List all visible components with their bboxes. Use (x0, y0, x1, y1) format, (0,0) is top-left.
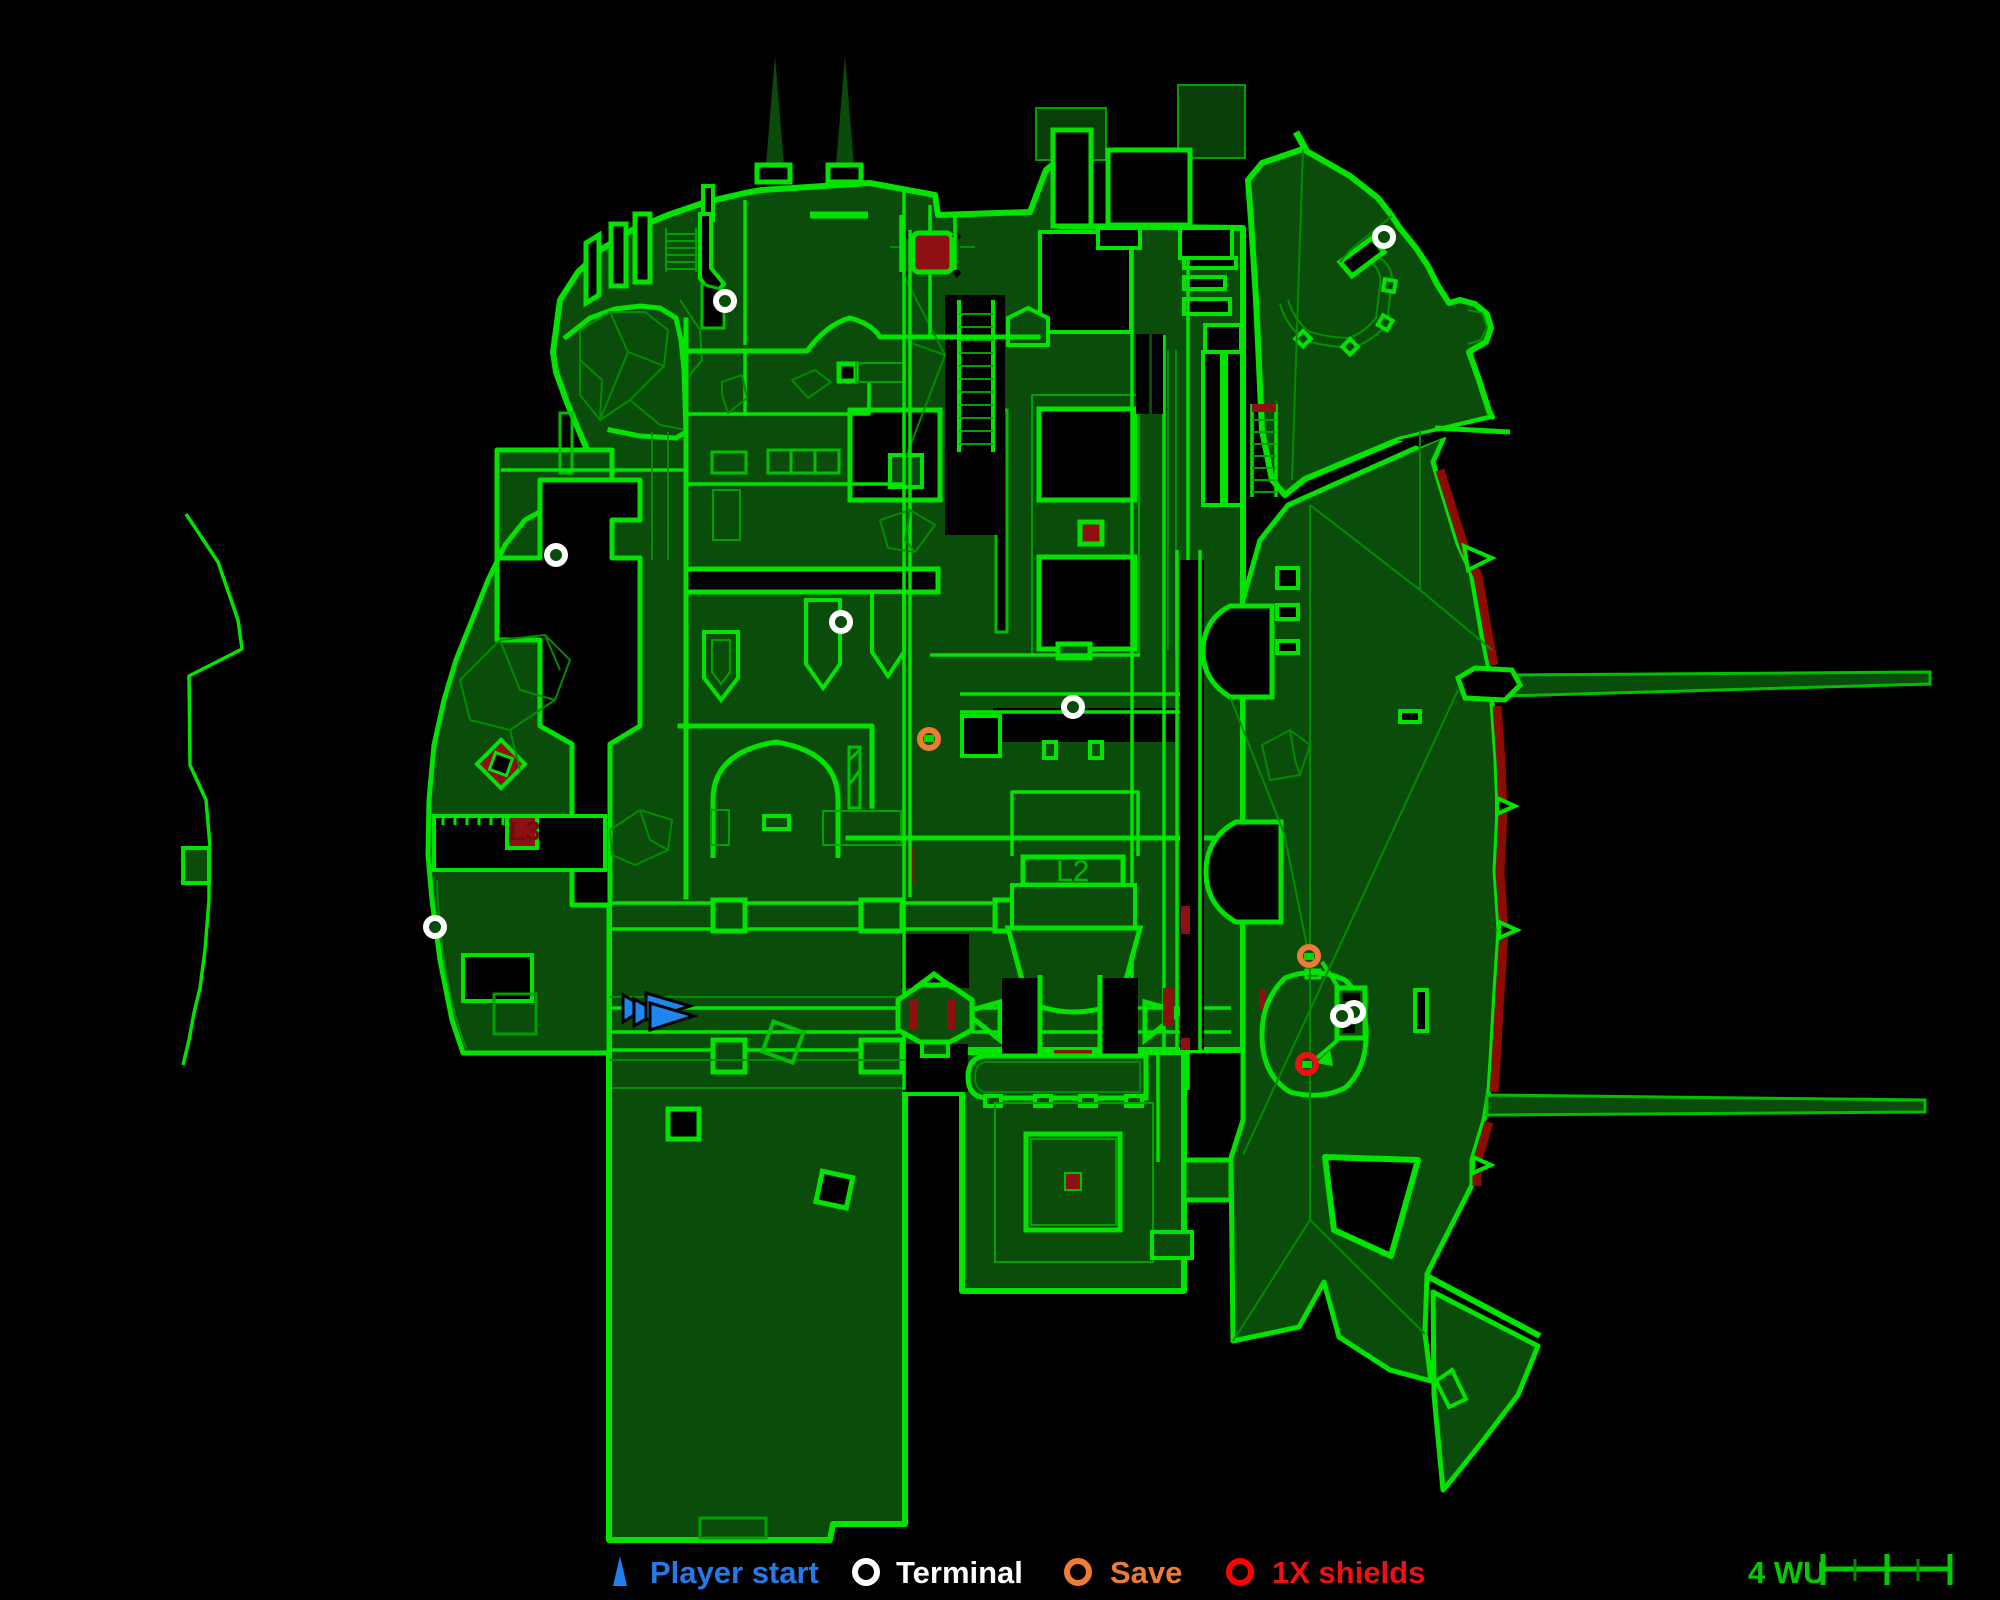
svg-text:L3: L3 (509, 816, 541, 846)
svg-text:4 WU: 4 WU (1748, 1555, 1826, 1590)
svg-text:Terminal: Terminal (896, 1555, 1023, 1590)
svg-text:1X shields: 1X shields (1272, 1555, 1425, 1590)
svg-text:Player start: Player start (650, 1555, 819, 1590)
svg-text:Save: Save (1110, 1555, 1182, 1590)
